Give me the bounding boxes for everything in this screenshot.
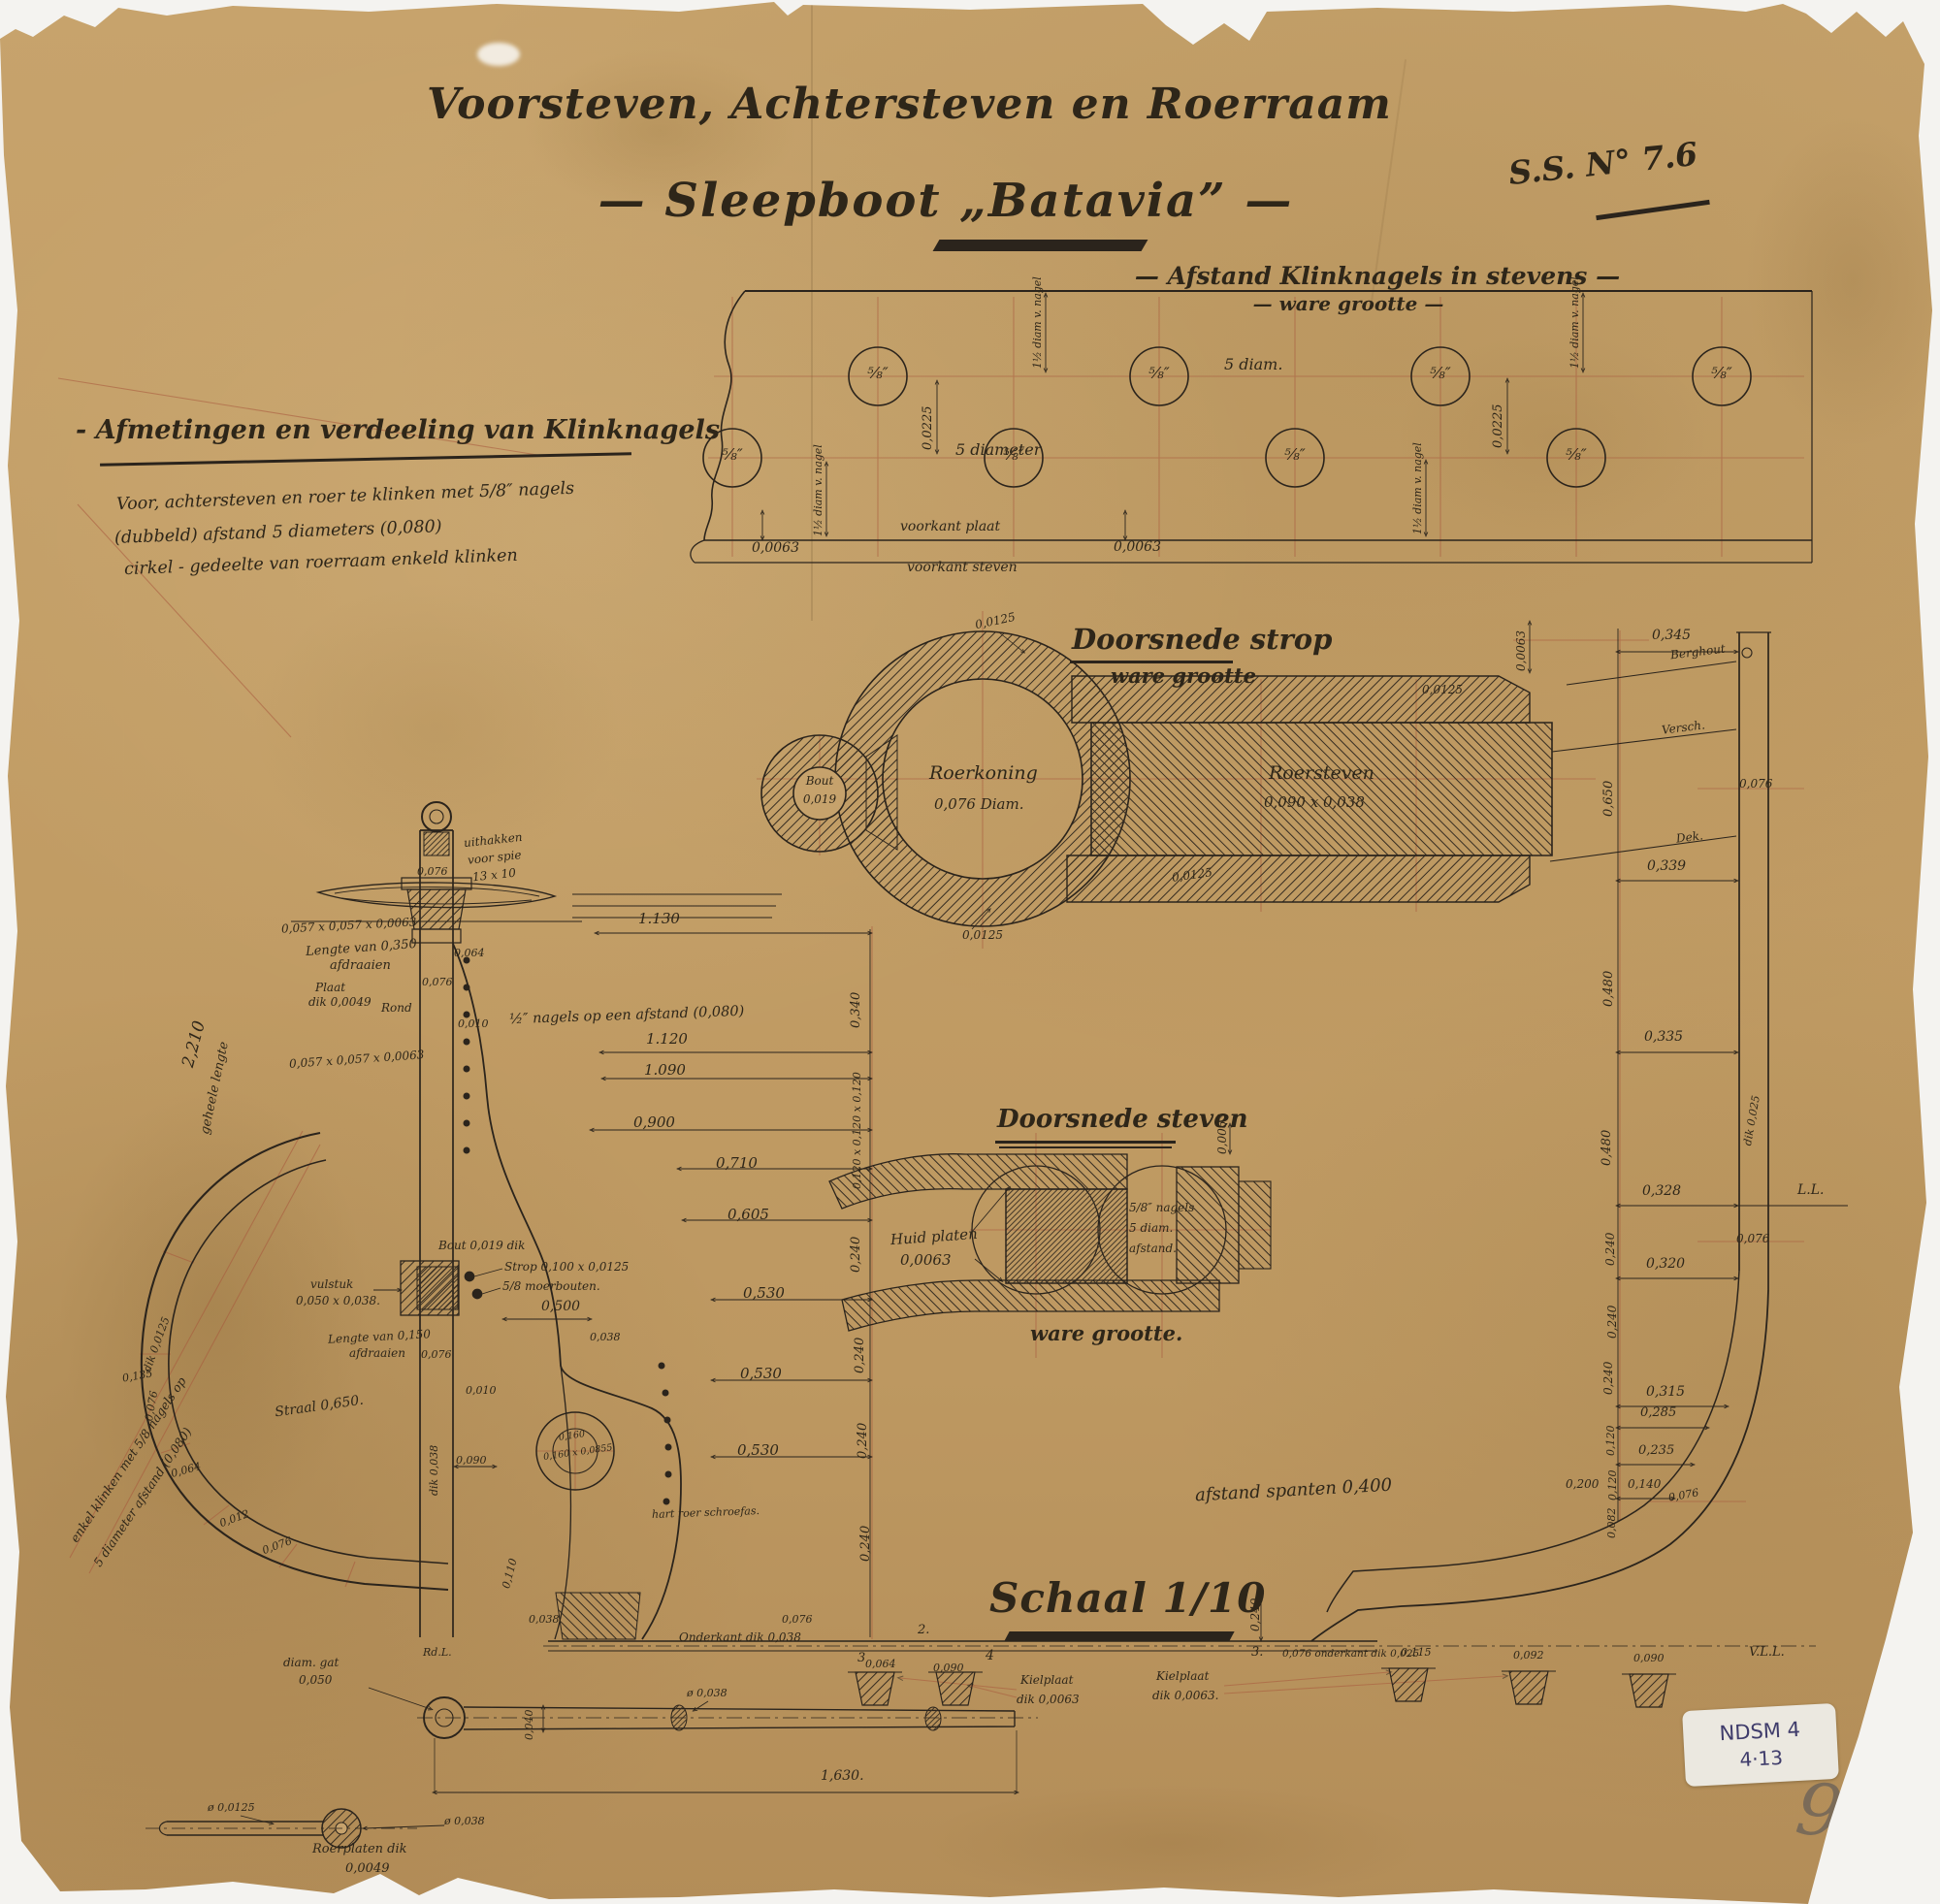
section-number: 2.: [918, 1624, 929, 1637]
dim-label: 0,315: [1646, 1385, 1685, 1400]
drawing-linework: [0, 0, 1940, 1904]
rivet-diagram-heading: — Afstand Klinknagels in stevens —: [1106, 264, 1649, 289]
machining-note: afdraaien: [330, 959, 391, 973]
roerkoning-value: 0,076 Diam.: [934, 797, 1023, 813]
dim-label: 0,0063: [752, 541, 799, 556]
dim-label: 0,090: [933, 1662, 964, 1674]
dim-label: 5 diameter: [955, 442, 1041, 459]
dim-label: 0,500: [541, 1300, 580, 1314]
notes-heading: - Afmetingen en verdeeling van Klinknage…: [76, 417, 720, 444]
dim-label: 0,900: [633, 1115, 675, 1131]
nagel-note: 5/8″ nagels: [1129, 1202, 1194, 1214]
dim-label: 0,076: [422, 977, 453, 988]
dim-label: 0,340: [850, 992, 863, 1028]
drawing-sheet: Voorsteven, Achtersteven en Roerraam — S…: [0, 0, 1940, 1904]
scan-background: Voorsteven, Achtersteven en Roerraam — S…: [0, 0, 1940, 1904]
dim-label: 0,0063: [1515, 630, 1528, 671]
rivet-plate-dimensions: [762, 295, 1583, 538]
dim-label: 0,240: [850, 1237, 863, 1273]
dim-label: 0,076: [1739, 778, 1772, 791]
strop-section-title: Doorsnede strop: [1072, 625, 1332, 654]
dim-label: 0,090: [1633, 1653, 1665, 1664]
huid-platen-value: 0,0063: [900, 1253, 952, 1269]
dim-label: 5 diam.: [1224, 357, 1282, 373]
roerplaten-note: Roerplaten dik: [312, 1843, 407, 1856]
gat-note: diam. gat: [283, 1657, 339, 1669]
dim-label: 1½ diam v. nagel: [1032, 276, 1044, 369]
dim-label: 0,240: [857, 1423, 870, 1459]
onderkant-note: 0,076 onderkant dik 0,025: [1282, 1649, 1419, 1660]
steven-section-diagram: [829, 1125, 1271, 1331]
rivet-size-label: ⅝″: [711, 447, 754, 464]
rivet-size-label: ⅝″: [1419, 366, 1462, 382]
rivet-size-label: ⅝″: [1555, 447, 1598, 464]
dim-label: ø 0,038: [687, 1688, 727, 1699]
strop-section-subtitle: ware grootte: [1111, 665, 1256, 687]
section-number: 3.: [1251, 1646, 1263, 1660]
dim-label: 0,010: [458, 1018, 489, 1030]
kielplaat-note: dik 0,0063.: [1152, 1690, 1218, 1702]
gat-note: 0,050: [299, 1674, 332, 1687]
dim-label: 0,010: [466, 1385, 497, 1397]
edge-label: voorkant plaat: [900, 520, 1000, 534]
dim-label: 0,076: [782, 1614, 813, 1626]
dim-label: dik 0,038: [429, 1445, 440, 1496]
dim-label: 1.120: [646, 1032, 688, 1048]
dim-label: 0,240: [1604, 1233, 1617, 1266]
dim-label: 0,082: [1606, 1508, 1618, 1539]
steven-title-underline: [999, 1146, 1172, 1148]
dim-label: 0,530: [743, 1286, 785, 1302]
dim-label: 0,120: [1607, 1470, 1619, 1501]
dim-label: 0,240: [1606, 1306, 1619, 1339]
steven-section-subtitle: ware grootte.: [1030, 1323, 1182, 1344]
dim-label: 0,240: [1602, 1362, 1615, 1395]
dim-label: 0,076: [1736, 1233, 1769, 1245]
drawing-title: Voorsteven, Achtersteven en Roerraam: [427, 82, 1309, 127]
roerkoning-label: Roerkoning: [929, 764, 1038, 784]
nagel-note: 5 diam.: [1129, 1222, 1173, 1235]
bout-note: Bout 0,019 dik: [438, 1240, 525, 1252]
dim-label: 0,200: [1566, 1478, 1599, 1491]
dim-label: 0,064: [454, 948, 485, 959]
rivet-size-label: ⅝″: [1700, 366, 1743, 382]
roersteven-value: 0,090 x 0,038: [1264, 795, 1365, 811]
dim-label: ø 0,0125: [208, 1802, 255, 1814]
rond-note: Rond: [381, 1002, 412, 1015]
dim-label: 0,038: [529, 1614, 560, 1626]
dim-label: 1,630.: [821, 1769, 864, 1784]
strop-dim-note: Strop 0,100 x 0,0125: [504, 1261, 629, 1274]
dim-label: 1½ diam v. nagel: [1569, 276, 1581, 369]
dim-label: 0,285: [1640, 1406, 1676, 1420]
waterline-label: L.L.: [1797, 1183, 1825, 1198]
vulstuk-note: vulstuk: [310, 1278, 353, 1291]
rivet-size-label: ⅝″: [1138, 366, 1180, 382]
dim-label: 0,092: [1513, 1650, 1544, 1662]
dim-label: 0,038: [590, 1332, 621, 1343]
kielplaat-note: dik 0,0063: [1017, 1694, 1080, 1706]
dim-label: 1½ diam v. nagel: [813, 444, 824, 536]
drawing-subtitle: — Sleepboot „Batavia” —: [524, 177, 1368, 225]
dim-label: 0,650: [1602, 781, 1616, 817]
pintle-bar-diagram: [369, 1688, 1038, 1792]
scale-label: Schaal 1/10: [989, 1577, 1266, 1620]
scale-underline: [1004, 1631, 1234, 1641]
rivet-diagram-subheading: — ware grootte —: [1203, 294, 1494, 314]
dim-label: 0,335: [1644, 1030, 1683, 1045]
dim-label: 0,0125: [1422, 684, 1463, 696]
kielplaat-note: Kielplaat: [1020, 1674, 1073, 1687]
dim-label: 0,120 x 0,120 x 0,120: [852, 1072, 863, 1189]
rivet-size-label: ⅝″: [857, 366, 899, 382]
edge-label: voorkant steven: [907, 561, 1018, 575]
dim-label: 0,480: [1600, 1130, 1614, 1166]
dim-label: 0,0063: [1216, 1113, 1229, 1154]
archive-sticker-code: NDSM 4: [1719, 1718, 1801, 1745]
dim-label: 0,0063: [1114, 540, 1161, 555]
ref-label: Rd.L.: [423, 1647, 452, 1659]
dim-label: 0,339: [1647, 859, 1686, 874]
plate-note: dik 0,0049: [308, 996, 372, 1009]
steven-section-title: Doorsnede steven: [997, 1107, 1248, 1133]
roersteven-label: Roersteven: [1269, 764, 1374, 784]
dim-label: 0,040: [524, 1710, 535, 1741]
dim-label: 1.130: [638, 912, 680, 927]
moerbout-note: 5/8 moerbouten.: [502, 1280, 600, 1293]
machining-note: afdraaien: [349, 1347, 405, 1360]
dim-label: 0,240: [854, 1338, 867, 1373]
rivet-plate-diagram: [691, 291, 1812, 563]
dim-label: 0,235: [1638, 1444, 1674, 1458]
dim-label: 0,480: [1602, 971, 1616, 1007]
dim-label: ø 0,038: [444, 1816, 485, 1827]
dim-label: 0,076: [417, 866, 448, 878]
dim-label: 0,605: [727, 1208, 769, 1223]
dim-label: 1½ diam v. nagel: [1412, 442, 1424, 534]
dim-label: 0,140: [1628, 1478, 1661, 1491]
rivet-size-label: ⅝″: [1274, 447, 1316, 464]
dim-label: 0,320: [1646, 1257, 1685, 1272]
dim-label: 0,240: [859, 1526, 873, 1562]
dim-label: 1.090: [644, 1063, 686, 1079]
kielplaat-note: Kielplaat: [1156, 1670, 1209, 1683]
archive-sticker-number: 4·13: [1739, 1746, 1784, 1771]
plate-note: Plaat: [315, 982, 345, 994]
nagel-note: afstand.: [1129, 1242, 1177, 1255]
onderkant-note: Onderkant dik 0,038: [679, 1631, 801, 1644]
bout-value: 0,019: [795, 793, 844, 806]
dim-label: 0,0225: [1492, 404, 1505, 449]
bout-label: Bout: [795, 775, 844, 788]
dim-label: 0,0125: [962, 929, 1003, 942]
dim-label: 0,064: [865, 1659, 896, 1670]
dim-label: 0,328: [1642, 1184, 1681, 1199]
page-number: 9: [1792, 1766, 1847, 1855]
roerplaten-note: 0,0049: [345, 1862, 390, 1876]
steven-title-underline: [995, 1141, 1176, 1144]
dim-label: 0,076: [421, 1349, 452, 1361]
dim-label: 0,345: [1652, 629, 1691, 643]
waterline-label: V.L.L.: [1749, 1646, 1785, 1660]
vulstuk-note: 0,050 x 0,038.: [296, 1295, 380, 1307]
title-underline: [933, 240, 1148, 251]
dim-label: 0,530: [737, 1443, 779, 1459]
dim-label: 0,710: [716, 1156, 758, 1172]
section-number: 4: [986, 1649, 994, 1663]
dim-label: 0,090: [456, 1455, 487, 1467]
dim-label: 0,0225: [921, 406, 935, 451]
dim-label: 0,120: [1605, 1426, 1617, 1457]
dim-label: 0,530: [740, 1367, 782, 1382]
